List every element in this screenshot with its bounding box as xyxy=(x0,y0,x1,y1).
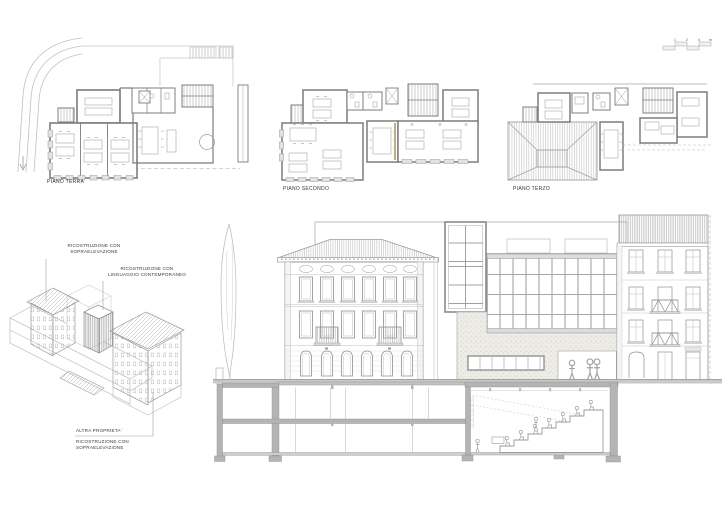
quoin xyxy=(617,246,622,380)
floor-plan-piano-secondo xyxy=(275,76,505,184)
exterior-stair xyxy=(219,47,233,58)
room xyxy=(572,93,588,113)
scale-tick-4: m xyxy=(709,38,712,42)
plan-label-piano-secondo: PIANO SECONDO xyxy=(283,186,329,192)
roof-plan xyxy=(508,122,597,180)
shop-sign xyxy=(685,347,701,351)
neighbor-facade xyxy=(617,215,710,384)
curtain-wall xyxy=(487,254,617,333)
annotation-line: ALTRA PROPRIETA' xyxy=(76,428,122,434)
skylight-box xyxy=(507,239,550,253)
arched-window xyxy=(629,352,644,378)
scale-tick-1: 1 xyxy=(674,38,676,42)
dentils xyxy=(279,259,437,262)
annotation-altra-proprieta: ALTRA PROPRIETA' xyxy=(76,428,122,434)
side-stair xyxy=(58,108,74,122)
side-stair xyxy=(291,105,303,123)
annotation-line: RICOSTRUZIONE CON xyxy=(76,439,129,445)
cypress-tree xyxy=(216,224,236,380)
plan-label-piano-terzo: PIANO TERZO xyxy=(513,186,550,192)
louver-volume xyxy=(84,305,113,353)
archive-room xyxy=(77,90,120,123)
terrace-line xyxy=(623,145,712,150)
scale-bar xyxy=(660,38,716,52)
side-stair xyxy=(523,107,537,122)
quoin xyxy=(285,262,291,380)
tiered-seating xyxy=(500,410,603,453)
scale-tick-2: 2 xyxy=(686,38,688,42)
ribbon-window xyxy=(468,356,544,370)
hipped-roof xyxy=(278,240,438,259)
office-sw xyxy=(282,123,363,180)
annotation-line: RICOSTRUZIONE CON xyxy=(60,243,128,249)
eave xyxy=(617,243,708,247)
roof-band xyxy=(619,215,708,243)
palazzo-elevation xyxy=(278,240,439,381)
main-stair xyxy=(643,88,673,113)
plan-label-piano-terra: PIANO TERRA xyxy=(47,179,84,185)
office-block xyxy=(50,123,137,178)
annotation-line: SOPRAELEVAZIONE xyxy=(60,249,128,255)
meeting-room xyxy=(367,121,398,162)
door xyxy=(686,352,700,380)
annotation-line: SOPRAELEVAZIONE xyxy=(76,445,129,451)
pedestrians xyxy=(569,359,600,381)
scale-tick-3: 4 xyxy=(698,38,700,42)
elevation-and-section xyxy=(210,208,722,476)
meeting-room xyxy=(600,122,623,170)
roof-ridge xyxy=(537,150,567,167)
round-table xyxy=(200,135,215,150)
annotation-ricostruzione-sopraelevazione-sx: RICOSTRUZIONE CON SOPRAELEVAZIONE xyxy=(60,243,128,255)
office-ne xyxy=(443,90,478,123)
glass-tower xyxy=(445,222,486,312)
drawing-sheet: 1 2 4 m xyxy=(0,0,722,506)
wc xyxy=(593,93,610,110)
skylight-box xyxy=(565,239,607,253)
wc xyxy=(363,92,382,110)
sideboard xyxy=(167,130,176,152)
road-arrow xyxy=(20,156,26,170)
quoin xyxy=(418,262,424,380)
floor-plan-piano-terra xyxy=(5,30,255,182)
office-nw xyxy=(538,93,570,122)
open-office xyxy=(398,121,478,162)
annotation-ricostruzione-sopraelevazione-dx: RICOSTRUZIONE CON SOPRAELEVAZIONE xyxy=(76,439,129,451)
walls xyxy=(282,84,478,180)
office-ne xyxy=(677,92,707,137)
bollard xyxy=(216,368,223,380)
screen xyxy=(492,437,504,444)
service-rooms xyxy=(132,88,175,113)
walls xyxy=(50,85,248,178)
annotation-line: LINGUAGGIO CONTEMPORANEO xyxy=(105,272,189,278)
floor-plan-piano-terzo xyxy=(503,74,722,184)
auditorium xyxy=(471,388,608,453)
meeting-table xyxy=(142,127,158,154)
side-return xyxy=(434,258,438,380)
exterior-stair xyxy=(190,47,216,58)
wall-ladder xyxy=(471,396,473,428)
section-basement xyxy=(215,382,621,462)
annotation-linguaggio-contemporaneo: RICOSTRUZIONE CON LINGUAGGIO CONTEMPORAN… xyxy=(105,266,189,278)
